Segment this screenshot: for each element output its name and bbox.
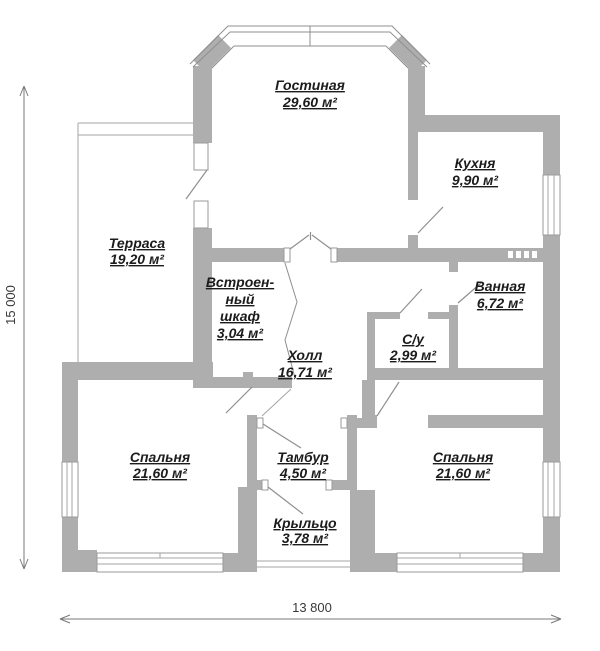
- bedroom-left-top-wall: [62, 362, 213, 380]
- porch-west-wall: [238, 487, 257, 562]
- bedroom-right-connector-wall: [362, 380, 375, 415]
- room-area-tambour: 4,50 м²: [279, 465, 326, 481]
- wc-door-leaf: [400, 289, 422, 313]
- vent-block: [524, 251, 529, 258]
- kitchen-west-wall-stub: [408, 235, 418, 248]
- wc-top-wall-right: [428, 312, 449, 319]
- room-label-living: Гостиная: [275, 77, 345, 93]
- dimension-left: 15 000: [3, 86, 28, 569]
- living-door-leaf-left: [290, 235, 309, 249]
- room-label-bathroom: Ванная: [475, 278, 526, 294]
- room-area-bathroom: 6,72 м²: [477, 295, 523, 311]
- tambour-door-frame-left: [257, 418, 263, 428]
- vent-block: [516, 251, 521, 258]
- hall-bottom-wall-right: [347, 418, 378, 428]
- room-labels: Гостиная 29,60 м² Кухня 9,90 м² Терраса …: [109, 77, 526, 546]
- room-label-porch: Крыльцо: [273, 515, 337, 531]
- porch-door-frame-right: [326, 480, 332, 490]
- bedroom-right-door-opening: [377, 415, 428, 428]
- kitchen-door-leaf: [418, 207, 443, 233]
- kitchen-window: [543, 175, 560, 235]
- bedroom-left-window: [62, 462, 78, 517]
- bedroom-left-door-leaf: [226, 387, 252, 413]
- room-label-closet-3: шкаф: [220, 308, 260, 324]
- room-label-terrace: Терраса: [109, 235, 165, 251]
- vent-block: [508, 251, 513, 258]
- dimension-bottom: 13 800: [60, 600, 561, 623]
- living-door-leaf-right: [312, 235, 331, 249]
- room-label-bedroom-right: Спальня: [433, 449, 493, 465]
- room-area-wc: 2,99 м²: [389, 347, 436, 363]
- room-area-porch: 3,78 м²: [282, 530, 328, 546]
- room-label-kitchen: Кухня: [455, 155, 496, 171]
- room-area-living: 29,60 м²: [282, 94, 337, 110]
- bath-bottom-wall: [367, 368, 543, 380]
- room-label-closet-1: Встроен-: [206, 274, 275, 290]
- hall-chamfer-left-line: [262, 389, 291, 416]
- terrace-door-frame-bottom: [194, 201, 208, 228]
- living-door-frame-left: [284, 248, 290, 262]
- living-west-wall-upper: [193, 66, 212, 143]
- vent-block: [532, 251, 537, 258]
- tambour-door-leaf: [263, 424, 301, 448]
- tambour-door-frame-right: [341, 418, 347, 428]
- living-east-wall: [408, 66, 425, 132]
- porch-east-wall: [350, 490, 375, 557]
- kitchen-west-wall: [408, 132, 418, 200]
- room-area-bedroom-right: 21,60 м²: [435, 465, 490, 481]
- room-area-closet: 3,04 м²: [217, 325, 263, 341]
- room-label-bedroom-left: Спальня: [130, 449, 190, 465]
- room-label-hall: Холл: [287, 347, 323, 363]
- porch-door-frame-left: [262, 480, 268, 490]
- tambour-bottom-wall-right: [332, 480, 357, 490]
- kitchen-top-wall: [425, 115, 560, 132]
- room-area-kitchen: 9,90 м²: [452, 172, 498, 188]
- floor-plan: 15 000 13 800 Гостиная 29,60 м² Кухня 9,…: [0, 0, 600, 651]
- room-area-hall: 16,71 м²: [278, 364, 332, 380]
- room-area-terrace: 19,20 м²: [110, 251, 164, 267]
- porch-door-leaf: [268, 487, 303, 514]
- living-door-opening: [284, 248, 337, 262]
- doors: [186, 143, 481, 567]
- terrace-door-leaf: [186, 170, 207, 199]
- bedroom-right-door-leaf: [377, 382, 399, 416]
- tambour-west-wall: [247, 415, 257, 490]
- bath-wall-stub: [449, 262, 458, 272]
- bath-wc-wall: [449, 305, 458, 368]
- dimension-width-label: 13 800: [292, 600, 332, 615]
- terrace-door-frame-top: [194, 143, 208, 170]
- dimension-height-label: 15 000: [3, 285, 18, 325]
- bedroom-right-window: [543, 462, 560, 517]
- room-area-bedroom-left: 21,60 м²: [132, 465, 187, 481]
- wc-west-wall: [367, 312, 375, 368]
- room-label-wc: С/у: [402, 331, 425, 347]
- room-label-tambour: Тамбур: [277, 449, 329, 465]
- hall-chamfer-pier: [243, 372, 253, 388]
- hall-top-wall-left: [212, 248, 284, 262]
- living-door-frame-right: [331, 248, 337, 262]
- room-label-closet-2: ный: [226, 291, 255, 307]
